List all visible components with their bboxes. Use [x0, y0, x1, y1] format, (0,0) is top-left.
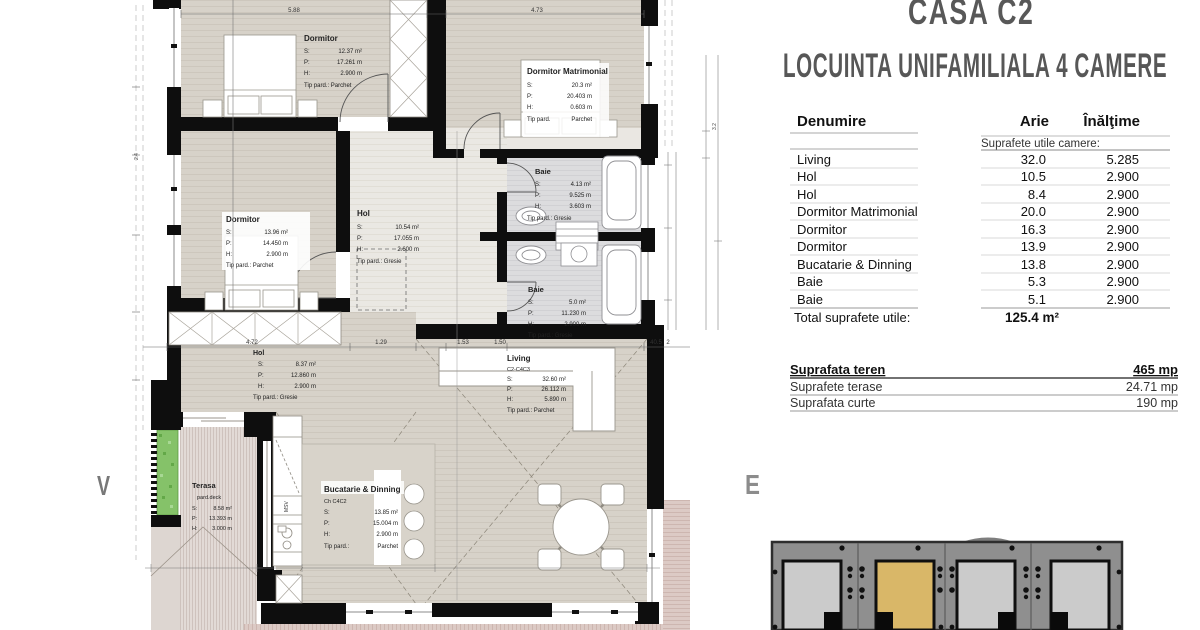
svg-text:P:: P: [304, 60, 310, 66]
svg-text:13.8: 13.8 [1021, 257, 1046, 272]
svg-text:H:: H: [324, 532, 330, 538]
svg-text:2.900: 2.900 [1106, 257, 1139, 272]
svg-text:S:: S: [357, 225, 363, 231]
svg-text:2.900 m: 2.900 m [266, 252, 288, 258]
svg-text:1.50: 1.50 [494, 340, 506, 346]
svg-text:32.0: 32.0 [1021, 152, 1046, 167]
svg-text:12.860 m: 12.860 m [291, 373, 316, 379]
svg-text:Tip pard.: Parchet: Tip pard.: Parchet [507, 408, 555, 414]
svg-text:Living: Living [797, 152, 831, 167]
svg-text:2.900: 2.900 [1106, 239, 1139, 254]
svg-text:2.600 m: 2.600 m [397, 247, 419, 253]
svg-text:Tip pard.: Gresie: Tip pard.: Gresie [528, 333, 573, 339]
svg-text:Ch C4C2: Ch C4C2 [324, 499, 347, 505]
svg-text:17.055 m: 17.055 m [394, 236, 419, 242]
svg-text:13.96 m²: 13.96 m² [264, 230, 288, 236]
svg-text:10.54 m²: 10.54 m² [395, 225, 419, 231]
svg-text:Terasa: Terasa [192, 481, 216, 490]
svg-text:S:: S: [535, 182, 541, 188]
svg-text:Baie: Baie [528, 285, 544, 294]
svg-text:Hol: Hol [797, 187, 817, 202]
svg-text:2.900: 2.900 [1106, 187, 1139, 202]
svg-text:12.37 m²: 12.37 m² [338, 49, 362, 55]
svg-text:26.112 m: 26.112 m [541, 387, 566, 393]
svg-text:20.403 m: 20.403 m [567, 94, 592, 100]
svg-text:H:: H: [226, 252, 232, 258]
svg-text:Total suprafete utile:: Total suprafete utile: [794, 310, 910, 325]
svg-text:Baie: Baie [797, 274, 823, 289]
svg-text:2.900: 2.900 [1106, 222, 1139, 237]
svg-text:MSV: MSV [284, 501, 290, 513]
svg-text:P:: P: [357, 236, 363, 242]
svg-text:Bucatarie & Dinning: Bucatarie & Dinning [324, 485, 401, 494]
svg-text:2.900: 2.900 [1106, 169, 1139, 184]
svg-text:P:: P: [507, 387, 513, 393]
svg-text:S:: S: [324, 510, 330, 516]
svg-text:Dormitor: Dormitor [226, 215, 260, 224]
svg-text:8.4: 8.4 [1028, 187, 1046, 202]
svg-text:Baie: Baie [797, 292, 823, 307]
svg-text:P:: P: [527, 94, 533, 100]
svg-text:H:: H: [507, 397, 513, 403]
svg-text:Tip pard.: Gresie: Tip pard.: Gresie [357, 259, 402, 265]
svg-text:Living: Living [507, 354, 531, 363]
svg-text:Suprafata curte: Suprafata curte [790, 396, 876, 410]
svg-text:3.2: 3.2 [712, 123, 718, 130]
svg-text:H:: H: [527, 105, 533, 111]
svg-text:Tip pard.: Parchet: Tip pard.: Parchet [304, 83, 352, 89]
svg-text:Tip pard.: Gresie: Tip pard.: Gresie [253, 395, 298, 401]
svg-text:2.900: 2.900 [1106, 204, 1139, 219]
svg-text:S:: S: [528, 300, 534, 306]
svg-text:32.60 m²: 32.60 m² [542, 377, 566, 383]
svg-text:3.000 m: 3.000 m [212, 526, 232, 532]
svg-text:P:: P: [258, 373, 264, 379]
svg-text:11.230 m: 11.230 m [561, 311, 586, 317]
svg-text:H:: H: [192, 526, 198, 532]
svg-text:5.3: 5.3 [1028, 274, 1046, 289]
svg-text:H:: H: [258, 384, 264, 390]
svg-text:8.37 m²: 8.37 m² [296, 362, 316, 368]
svg-text:13.9: 13.9 [1021, 239, 1046, 254]
svg-text:5.88: 5.88 [288, 8, 300, 14]
svg-text:pard.deck: pard.deck [197, 495, 221, 501]
svg-text:Tip pard.: Gresie: Tip pard.: Gresie [527, 216, 572, 222]
svg-text:Dormitor: Dormitor [797, 239, 848, 254]
svg-text:Înălţime: Înălţime [1082, 112, 1140, 130]
svg-text:2.900 m: 2.900 m [564, 322, 586, 328]
svg-text:H:: H: [357, 247, 363, 253]
svg-text:S:: S: [527, 83, 533, 89]
svg-text:16.3: 16.3 [1021, 222, 1046, 237]
svg-text:H:: H: [535, 204, 541, 210]
svg-text:Suprafete terase: Suprafete terase [790, 380, 882, 394]
svg-text:S:: S: [226, 230, 232, 236]
svg-text:Tip pard.: Tip pard. [527, 117, 551, 123]
svg-text:Parchet: Parchet [377, 544, 398, 550]
svg-text:P:: P: [226, 241, 232, 247]
svg-text:H:: H: [304, 71, 310, 77]
svg-text:S:: S: [507, 377, 513, 383]
svg-text:3.603 m: 3.603 m [569, 204, 591, 210]
svg-text:Dormitor Matrimonial: Dormitor Matrimonial [797, 204, 918, 219]
svg-text:P:: P: [528, 311, 534, 317]
svg-text:Parchet: Parchet [571, 117, 592, 123]
svg-text:Dormitor: Dormitor [304, 34, 338, 43]
svg-text:Hol: Hol [253, 350, 264, 357]
svg-text:Hol: Hol [357, 209, 370, 218]
svg-text:14.450 m: 14.450 m [263, 241, 288, 247]
svg-text:4.73: 4.73 [531, 8, 543, 14]
svg-text:190 mp: 190 mp [1136, 396, 1178, 410]
svg-text:Suprafata teren: Suprafata teren [790, 362, 885, 377]
svg-text:5.1: 5.1 [1028, 292, 1046, 307]
svg-text:9.525 m: 9.525 m [569, 193, 591, 199]
svg-text:5.0 m²: 5.0 m² [569, 300, 586, 306]
svg-text:465 mp: 465 mp [1133, 362, 1178, 377]
svg-text:Baie: Baie [535, 167, 551, 176]
svg-text:2.900: 2.900 [1106, 292, 1139, 307]
svg-text:S:: S: [192, 506, 198, 512]
svg-text:P:: P: [192, 516, 198, 522]
svg-text:40.5: 40.5 [650, 340, 662, 346]
svg-text:5.285: 5.285 [1106, 152, 1139, 167]
svg-text:Bucatarie & Dinning: Bucatarie & Dinning [797, 257, 912, 272]
svg-text:17.261 m: 17.261 m [337, 60, 362, 66]
svg-text:2.900 m: 2.900 m [340, 71, 362, 77]
svg-text:8.58 m²: 8.58 m² [213, 506, 232, 512]
svg-text:2.900 m: 2.900 m [376, 532, 398, 538]
svg-text:C2-C4C3: C2-C4C3 [507, 367, 530, 373]
svg-text:Denumire: Denumire [797, 113, 866, 130]
svg-text:1.53: 1.53 [457, 340, 469, 346]
svg-text:P:: P: [535, 193, 541, 199]
svg-text:Hol: Hol [797, 169, 817, 184]
svg-text:Dormitor Matrimonial: Dormitor Matrimonial [527, 67, 608, 76]
svg-text:2: 2 [666, 340, 670, 346]
svg-text:13.85 m²: 13.85 m² [374, 510, 398, 516]
svg-text:Tip pard.:: Tip pard.: [324, 544, 349, 550]
svg-text:Arie: Arie [1020, 113, 1049, 130]
svg-text:H:: H: [528, 322, 534, 328]
svg-text:2.4: 2.4 [134, 153, 140, 160]
svg-text:20.3 m²: 20.3 m² [572, 83, 592, 89]
svg-text:0.603 m: 0.603 m [570, 105, 592, 111]
svg-text:S:: S: [258, 362, 264, 368]
svg-text:13.393 m: 13.393 m [209, 516, 232, 522]
svg-text:24.71 mp: 24.71 mp [1126, 380, 1178, 394]
svg-text:10.5: 10.5 [1021, 169, 1046, 184]
svg-text:15.004 m: 15.004 m [373, 521, 398, 527]
svg-text:5.890 m: 5.890 m [544, 397, 566, 403]
svg-text:4.72: 4.72 [246, 340, 258, 346]
svg-text:Dormitor: Dormitor [797, 222, 848, 237]
svg-text:Suprafete utile camere:: Suprafete utile camere: [981, 138, 1100, 150]
svg-text:S:: S: [304, 49, 310, 55]
svg-text:2.900: 2.900 [1106, 274, 1139, 289]
svg-text:1.29: 1.29 [375, 340, 387, 346]
svg-text:125.4 m²: 125.4 m² [1005, 310, 1060, 325]
svg-text:2.900 m: 2.900 m [294, 384, 316, 390]
svg-text:4.13 m²: 4.13 m² [571, 182, 591, 188]
svg-text:20.0: 20.0 [1021, 204, 1046, 219]
svg-text:P:: P: [324, 521, 330, 527]
